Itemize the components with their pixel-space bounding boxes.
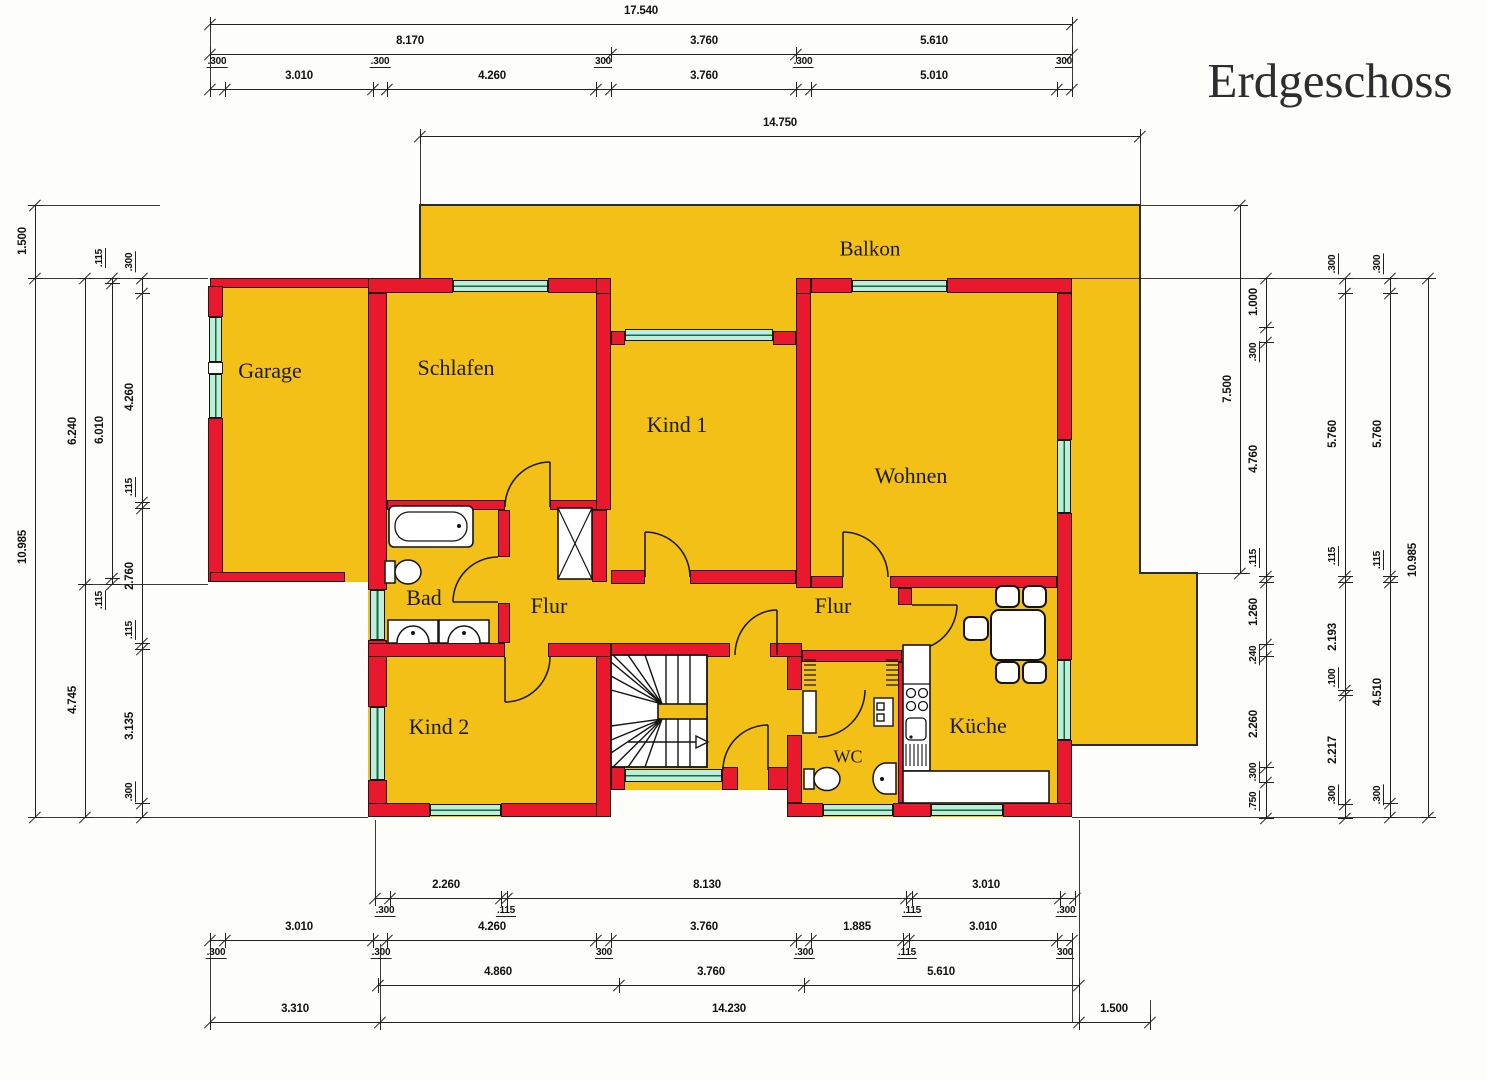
wohnen-door [843, 532, 888, 577]
hatch-marks [804, 660, 898, 685]
staircase [611, 655, 708, 767]
wc-door-leaf [803, 691, 816, 733]
dining-set-icon [964, 586, 1046, 683]
wc-sink-icon [873, 763, 896, 794]
floorplan-canvas: Erdgeschoss BalkonGarageSchlafenKind 1Wo… [0, 0, 1487, 1080]
kind1-door [645, 532, 690, 577]
plan-lineart [0, 0, 1487, 1080]
balcony-outline [420, 205, 1197, 745]
washbasin-icons [388, 620, 489, 643]
bathtub-icon [389, 506, 473, 547]
flur-entrance-door [735, 610, 777, 655]
wc-cupboard-icon [874, 698, 893, 726]
bad-toilet-icon [385, 560, 421, 584]
kind2-door [505, 657, 550, 702]
bad-door [453, 557, 498, 602]
schlafen-door [505, 462, 550, 507]
wc-toilet-icon [804, 768, 840, 791]
wc-door [818, 690, 865, 737]
shaft-icon [558, 508, 592, 579]
kueche-door [912, 605, 957, 650]
entrance-door [723, 725, 768, 770]
